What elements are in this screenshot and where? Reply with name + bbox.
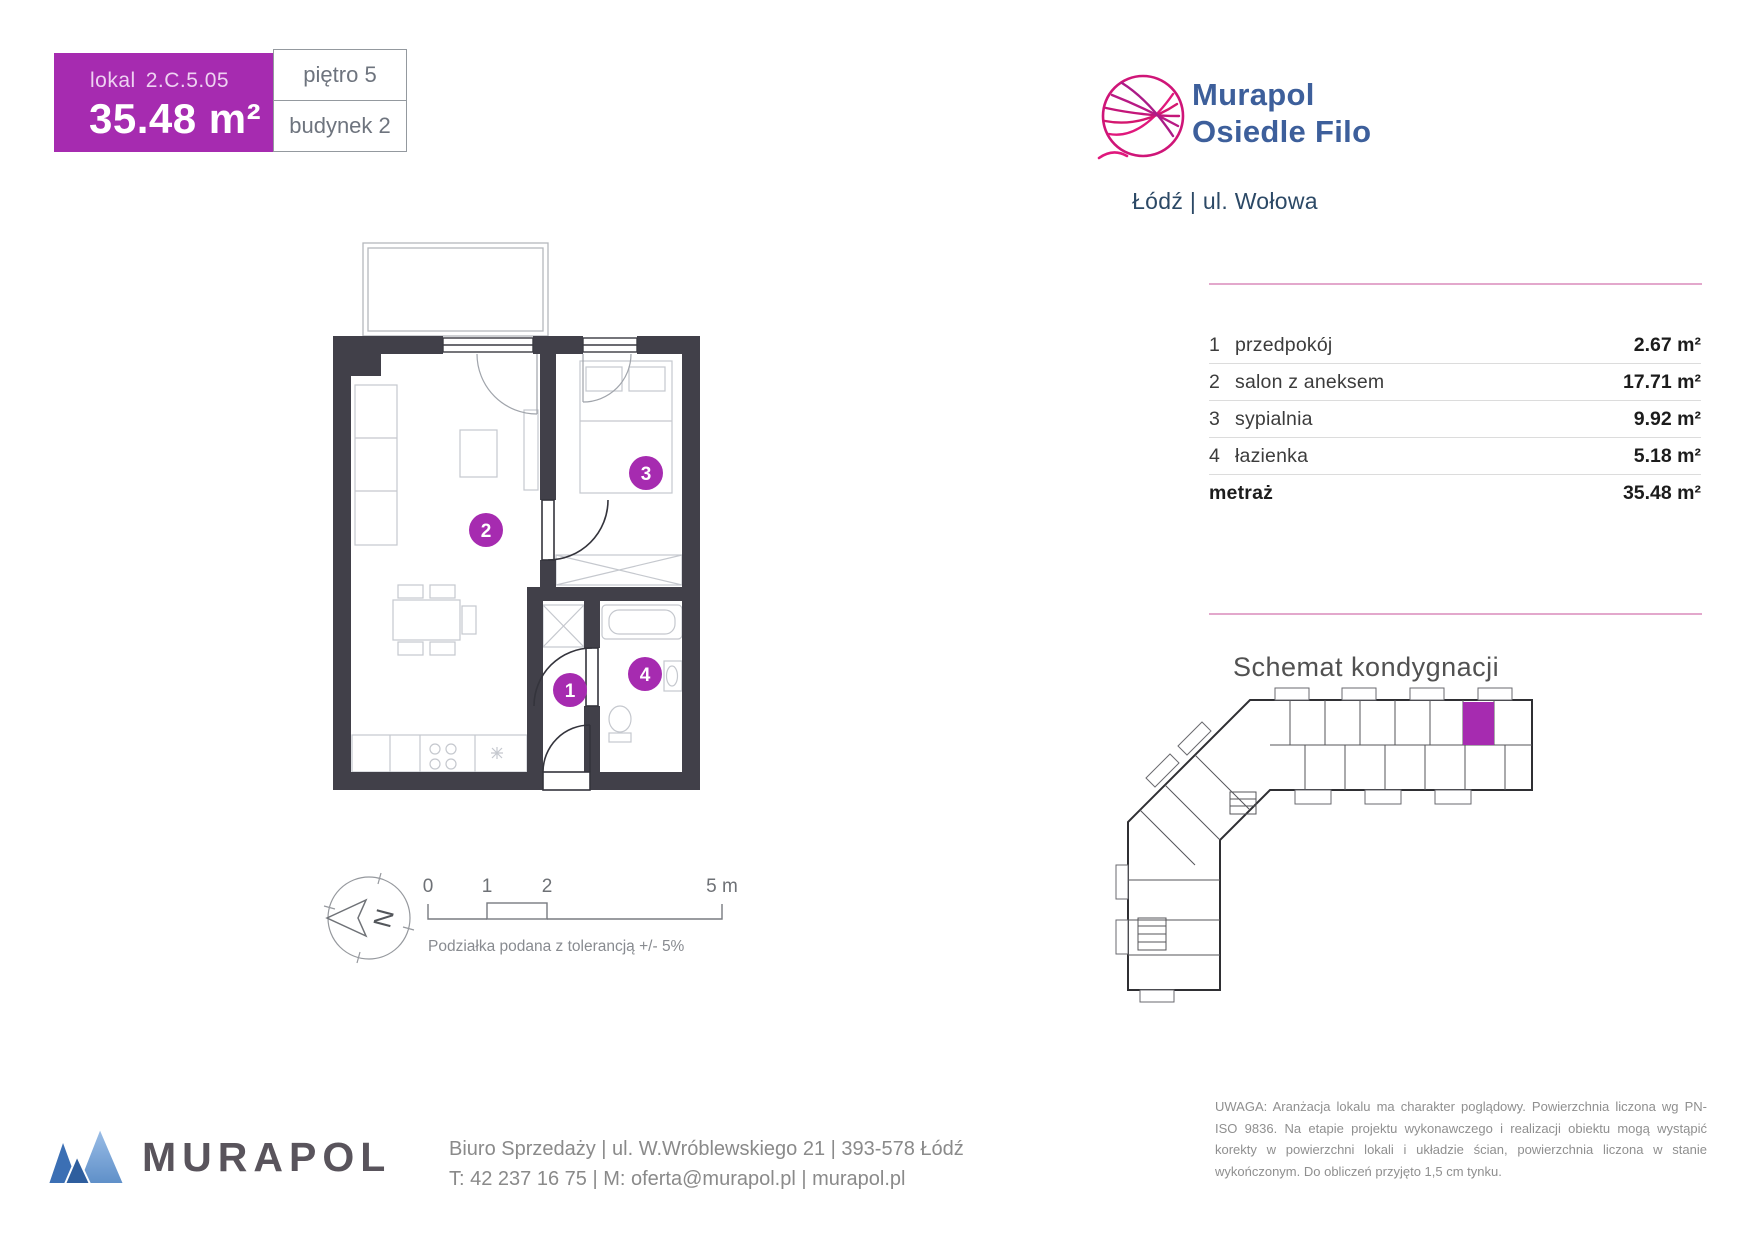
pink-divider-bottom [1209, 613, 1702, 615]
scale-tick-0: 0 [423, 876, 434, 897]
scale-tick-1: 1 [482, 876, 493, 897]
compass-icon: N [324, 873, 414, 963]
scale-tick-2: 2 [542, 876, 553, 897]
unit-card: lokal2.C.5.05 35.48 m² [54, 53, 273, 152]
disclaimer-text: UWAGA: Aranżacja lokalu ma charakter pog… [1215, 1096, 1707, 1182]
sofa [355, 385, 397, 545]
room-name: przedpokój [1235, 334, 1332, 357]
total-label: metraż [1209, 482, 1273, 505]
toilet [609, 706, 631, 732]
contact-line: T: 42 237 16 75 | M: oferta@murapol.pl |… [449, 1164, 964, 1194]
schematic-title: Schemat kondygnacji [1233, 652, 1499, 683]
room-badge-4-label: 4 [640, 665, 651, 686]
table-row: 4 łazienka 5.18 m² [1209, 438, 1701, 475]
table-row: 2 salon z aneksem 17.71 m² [1209, 364, 1701, 401]
bathroom-door [586, 648, 598, 706]
dining-table [393, 600, 460, 640]
brand-name: Murapol Osiedle Filo [1192, 76, 1371, 150]
building-cell: budynek 2 [274, 101, 406, 151]
unit-meta-cells: piętro 5 budynek 2 [273, 49, 407, 152]
room-number: 4 [1209, 445, 1235, 468]
total-area: 35.48 m² [1623, 482, 1701, 505]
apartment-flyer-page: lokal2.C.5.05 35.48 m² piętro 5 budynek … [0, 0, 1754, 1240]
scale-tick-5: 5 m [706, 876, 738, 897]
compass-north-label: N [367, 906, 399, 931]
room-area: 5.18 m² [1634, 445, 1701, 468]
room-area: 17.71 m² [1623, 371, 1701, 394]
room-area: 9.92 m² [1634, 408, 1701, 431]
sink-icon [491, 747, 503, 759]
room-name: salon z aneksem [1235, 371, 1384, 394]
floor-cell: piętro 5 [274, 50, 406, 101]
apartment-floor-plan: 1 2 3 4 N 0 1 2 5 m Podziałka podana [280, 215, 760, 975]
room-area: 2.67 m² [1634, 334, 1701, 357]
walls [333, 336, 700, 790]
rooms-table: 1 przedpokój 2.67 m² 2 salon z aneksem 1… [1209, 285, 1701, 511]
brand-line2: Osiedle Filo [1192, 113, 1371, 150]
tv-cabinet [524, 410, 538, 490]
room-badge-2-label: 2 [481, 521, 492, 542]
footer-logo-wordmark: MURAPOL [142, 1134, 391, 1181]
entrance-door [543, 772, 590, 790]
room-number: 2 [1209, 371, 1235, 394]
sales-office-line: Biuro Sprzedaży | ul. W.Wróblewskiego 21… [449, 1134, 964, 1164]
sphere-tail [1099, 152, 1127, 158]
scale-bar: 0 1 2 5 m Podziałka podana z tolerancją … [423, 876, 738, 955]
bedroom-door [542, 500, 554, 560]
unit-lokal-line: lokal2.C.5.05 [54, 53, 273, 93]
room-badge-1-label: 1 [565, 681, 576, 702]
furniture [352, 361, 682, 772]
room-name: łazienka [1235, 445, 1308, 468]
lokal-code: 2.C.5.05 [146, 69, 229, 92]
highlighted-unit [1463, 702, 1494, 745]
room-badge-3-label: 3 [641, 464, 652, 485]
brand-line1: Murapol [1192, 76, 1371, 113]
coffee-table [460, 430, 497, 477]
table-row: 3 sypialnia 9.92 m² [1209, 401, 1701, 438]
room-name: sypialnia [1235, 408, 1313, 431]
murapol-sphere-logo-icon [1097, 66, 1192, 171]
unit-area: 35.48 m² [54, 93, 273, 143]
lokal-prefix: lokal [90, 69, 136, 92]
room-number: 1 [1209, 334, 1235, 357]
murapol-mountains-logo-icon [48, 1124, 132, 1188]
footer-contact: Biuro Sprzedaży | ul. W.Wróblewskiego 21… [449, 1134, 964, 1194]
balcony [363, 243, 548, 336]
table-row: 1 przedpokój 2.67 m² [1209, 327, 1701, 364]
room-badges: 1 2 3 4 [469, 456, 663, 707]
floor-schematic-drawing [1080, 680, 1560, 1010]
scale-tolerance-note: Podziałka podana z tolerancją +/- 5% [428, 938, 685, 955]
room-number: 3 [1209, 408, 1235, 431]
table-total-row: metraż 35.48 m² [1209, 475, 1701, 511]
brand-location: Łódź | ul. Wołowa [1090, 188, 1360, 215]
